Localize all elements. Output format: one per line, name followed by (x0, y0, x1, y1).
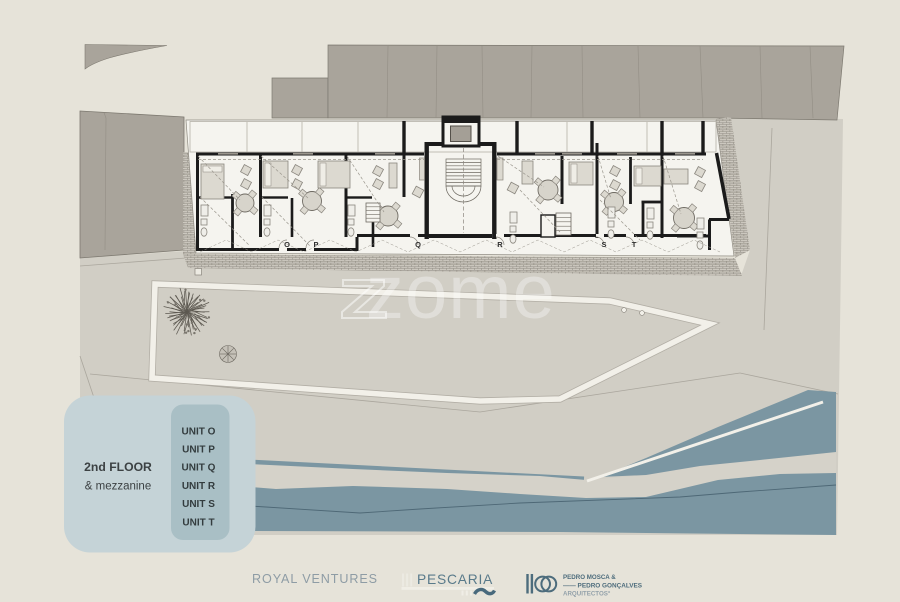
svg-text:—— PEDRO GONÇALVES: —— PEDRO GONÇALVES (563, 582, 643, 589)
svg-text:PEDRO MOSCA &: PEDRO MOSCA & (563, 574, 616, 581)
svg-text:& mezzanine: & mezzanine (85, 481, 151, 493)
svg-text:R: R (497, 240, 503, 249)
svg-text:S: S (601, 240, 606, 249)
svg-text:T: T (632, 240, 637, 249)
svg-text:ARQUITECTOS°: ARQUITECTOS° (563, 590, 611, 597)
svg-text:PESCARIA: PESCARIA (417, 572, 493, 587)
svg-text:UNIT O: UNIT O (182, 426, 216, 437)
svg-text:2nd FLOOR: 2nd FLOOR (84, 460, 152, 474)
svg-text:UNIT Q: UNIT Q (182, 463, 216, 474)
svg-text:zome: zome (366, 250, 556, 335)
svg-text:P: P (313, 240, 318, 249)
svg-text:UNIT T: UNIT T (182, 517, 214, 528)
svg-text:ROYAL VENTURES: ROYAL VENTURES (252, 572, 378, 586)
svg-text:Q: Q (415, 240, 421, 249)
svg-text:UNIT R: UNIT R (182, 481, 216, 492)
svg-text:O: O (284, 240, 290, 249)
svg-text:UNIT S: UNIT S (182, 499, 215, 510)
svg-text:UNIT P: UNIT P (182, 445, 215, 456)
